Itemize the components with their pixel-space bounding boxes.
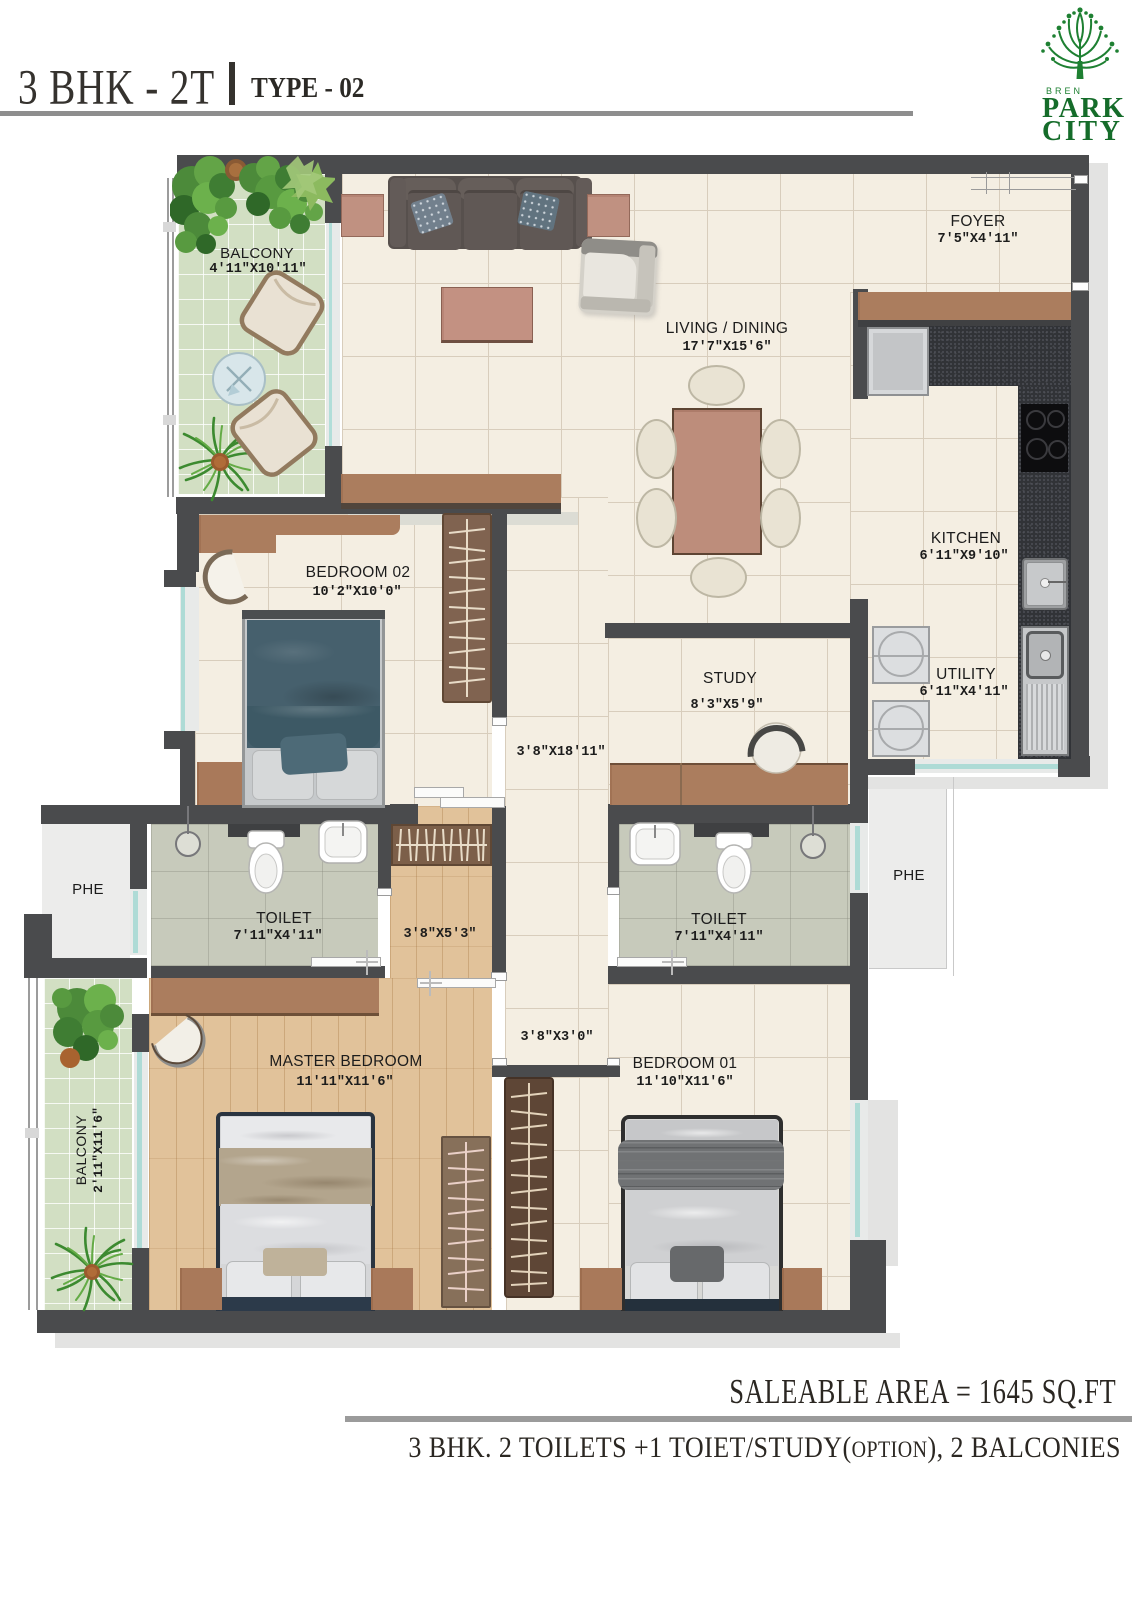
svg-text:CITY: CITY xyxy=(1042,116,1120,145)
